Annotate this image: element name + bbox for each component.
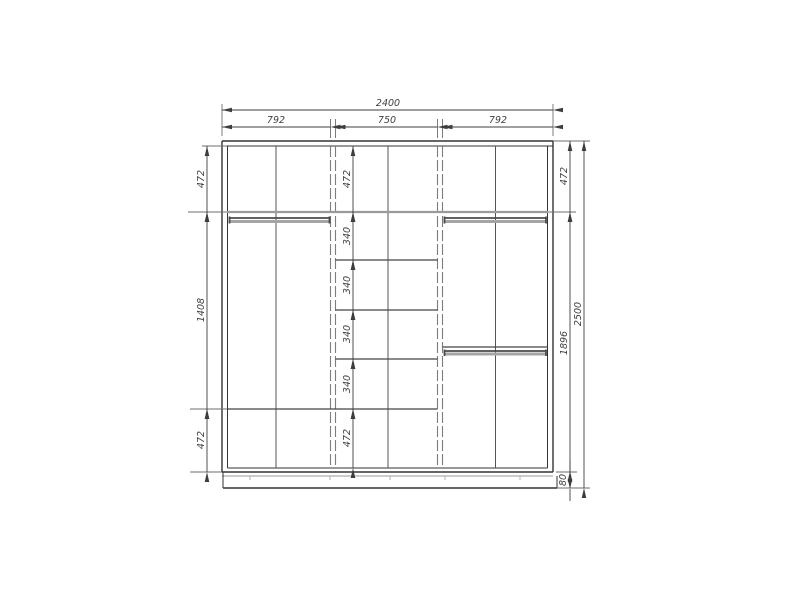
dimension-labels: 2400 792 750 792 472 1408 472 472 340 34… xyxy=(196,98,584,486)
dim-middle-2: 340 xyxy=(342,227,353,245)
dim-right-top: 472 xyxy=(559,167,570,185)
dim-top-section-right: 792 xyxy=(489,115,507,126)
section-partitions xyxy=(276,146,496,468)
dim-middle-6: 472 xyxy=(342,429,353,447)
dim-top-section-left: 792 xyxy=(267,115,285,126)
dimension-lines xyxy=(207,110,584,501)
dim-right-middle: 1896 xyxy=(559,331,570,355)
dim-middle-5: 340 xyxy=(342,375,353,393)
dim-middle-1: 472 xyxy=(342,170,353,188)
extension-lines xyxy=(190,104,590,488)
dim-overall-height: 2500 xyxy=(573,302,584,326)
dim-middle-3: 340 xyxy=(342,276,353,294)
wardrobe-drawing: 2400 792 750 792 472 1408 472 472 340 34… xyxy=(0,0,800,600)
dim-top-section-middle: 750 xyxy=(378,115,396,126)
dim-left-middle: 1408 xyxy=(196,298,207,322)
drawing-page: 2400 792 750 792 472 1408 472 472 340 34… xyxy=(0,0,800,600)
dim-left-top: 472 xyxy=(196,170,207,188)
dim-middle-4: 340 xyxy=(342,325,353,343)
dim-overall-width: 2400 xyxy=(376,98,400,109)
cabinet-base xyxy=(222,472,557,488)
dim-right-base: 80 xyxy=(558,474,569,486)
dim-left-bottom: 472 xyxy=(196,431,207,449)
shelves xyxy=(188,212,576,409)
